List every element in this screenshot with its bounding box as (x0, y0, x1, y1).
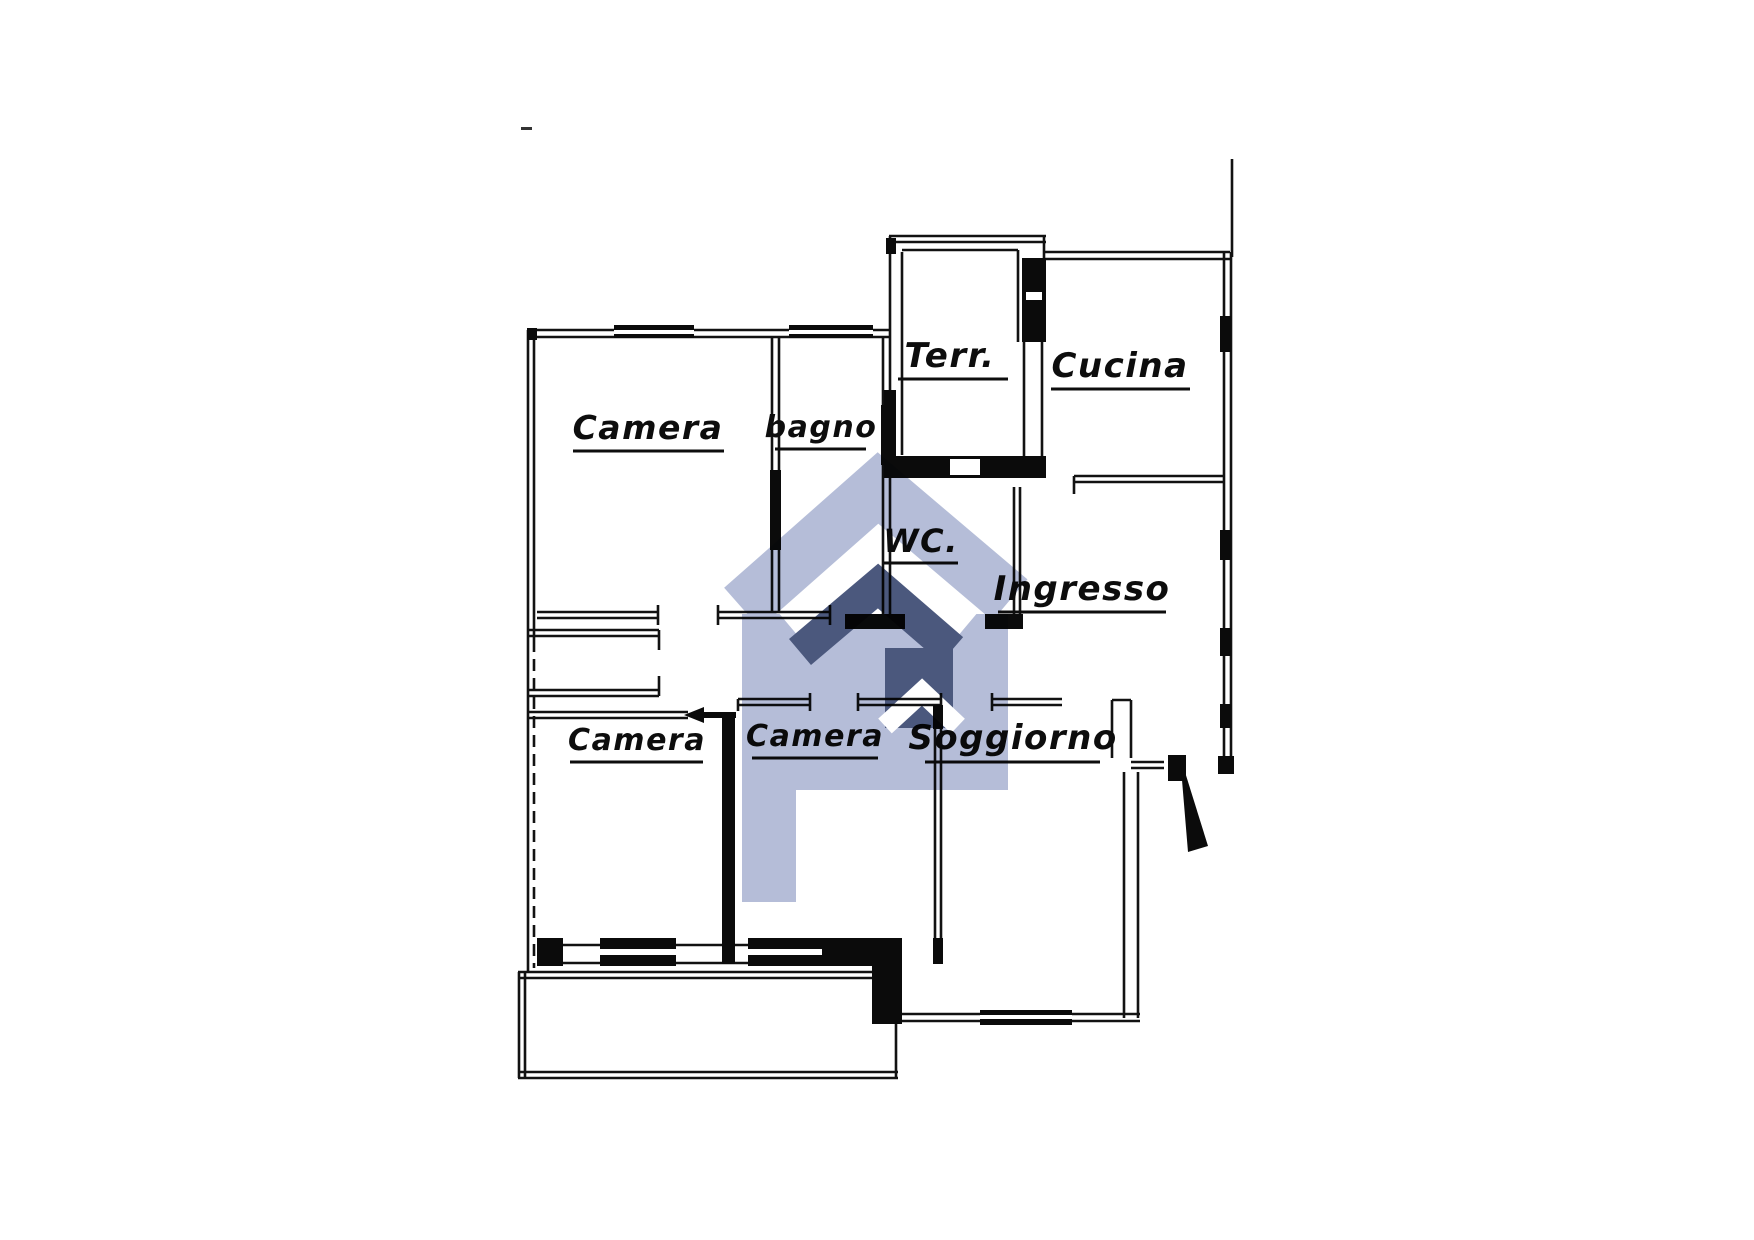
wall-bar-balcony-junction (872, 938, 902, 1024)
wall-thick-bottom-right (822, 938, 872, 966)
wall-corner-blob (527, 328, 537, 340)
wall-tick-right-1 (1220, 316, 1231, 352)
room-label-bagno: bagno (765, 410, 878, 445)
wall-balcony (518, 972, 898, 1078)
room-label-terrazzo: Terr. (905, 336, 996, 376)
door-arrow-head (684, 707, 704, 723)
wall-thick-divider (770, 470, 781, 550)
wall-entrance-recess (1112, 700, 1164, 768)
window-camera-tl-1-slit (614, 330, 694, 334)
door-arrow-shaft (702, 712, 736, 718)
scan-artifact-dash (521, 127, 532, 130)
watermark-body (742, 614, 1008, 790)
wall-thick-bottom-divider (722, 712, 735, 964)
wall-camera-bl-top (527, 712, 688, 718)
watermark-house-logo (742, 488, 1010, 902)
window-terrace-cucina-slit (1026, 292, 1042, 300)
wall-soggiorno-right (1124, 772, 1138, 1018)
window-camera-bm-slit (748, 949, 822, 955)
wall-cucina-bottom (1074, 476, 1224, 494)
watermark-tail (742, 790, 796, 902)
wall-cucina-top (1044, 252, 1230, 259)
room-label-camera-top-left: Camera (573, 408, 724, 447)
wall-terrace-window-jambs (1024, 342, 1042, 456)
room-label-camera-bottom-left: Camera (568, 723, 706, 758)
wall-tick-right-3 (1220, 628, 1231, 656)
wall-cap-bottom-left (537, 938, 563, 966)
window-camera-bl-slit (600, 949, 676, 955)
floor-plan-canvas: Terr. Cucina Camera bagno WC. Ingresso C… (0, 0, 1754, 1240)
wall-tick-right-2 (1220, 530, 1231, 560)
wall-blob-terrace-top (886, 238, 896, 254)
window-soggiorno-slit (980, 1015, 1072, 1019)
entrance-door-swing (1180, 756, 1208, 852)
wall-cap-bm-bottom (933, 938, 943, 964)
wall-corridor-stubs (527, 630, 659, 696)
window-bagno-slit (789, 330, 873, 334)
wall-terrace-top (889, 236, 1046, 259)
room-label-cucina: Cucina (1051, 346, 1188, 386)
wall-tick-right-4 (1220, 704, 1231, 728)
door-terrace-gap (950, 459, 980, 475)
floor-plan-page: Terr. Cucina Camera bagno WC. Ingresso C… (0, 0, 1754, 1240)
wall-cap-right-end (1218, 756, 1234, 774)
